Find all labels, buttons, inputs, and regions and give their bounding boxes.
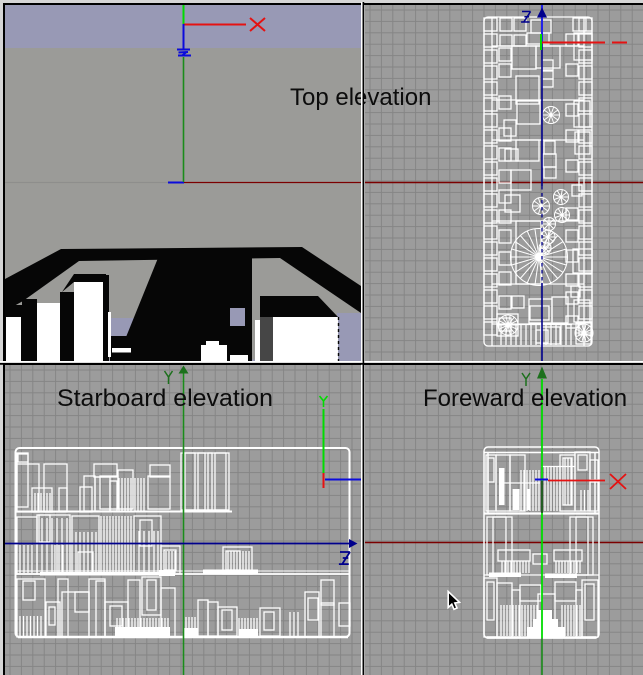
svg-text:Starboard elevation: Starboard elevation bbox=[57, 385, 273, 412]
svg-text:Foreward elevation: Foreward elevation bbox=[423, 385, 627, 412]
svg-text:Top elevation: Top elevation bbox=[290, 84, 431, 111]
